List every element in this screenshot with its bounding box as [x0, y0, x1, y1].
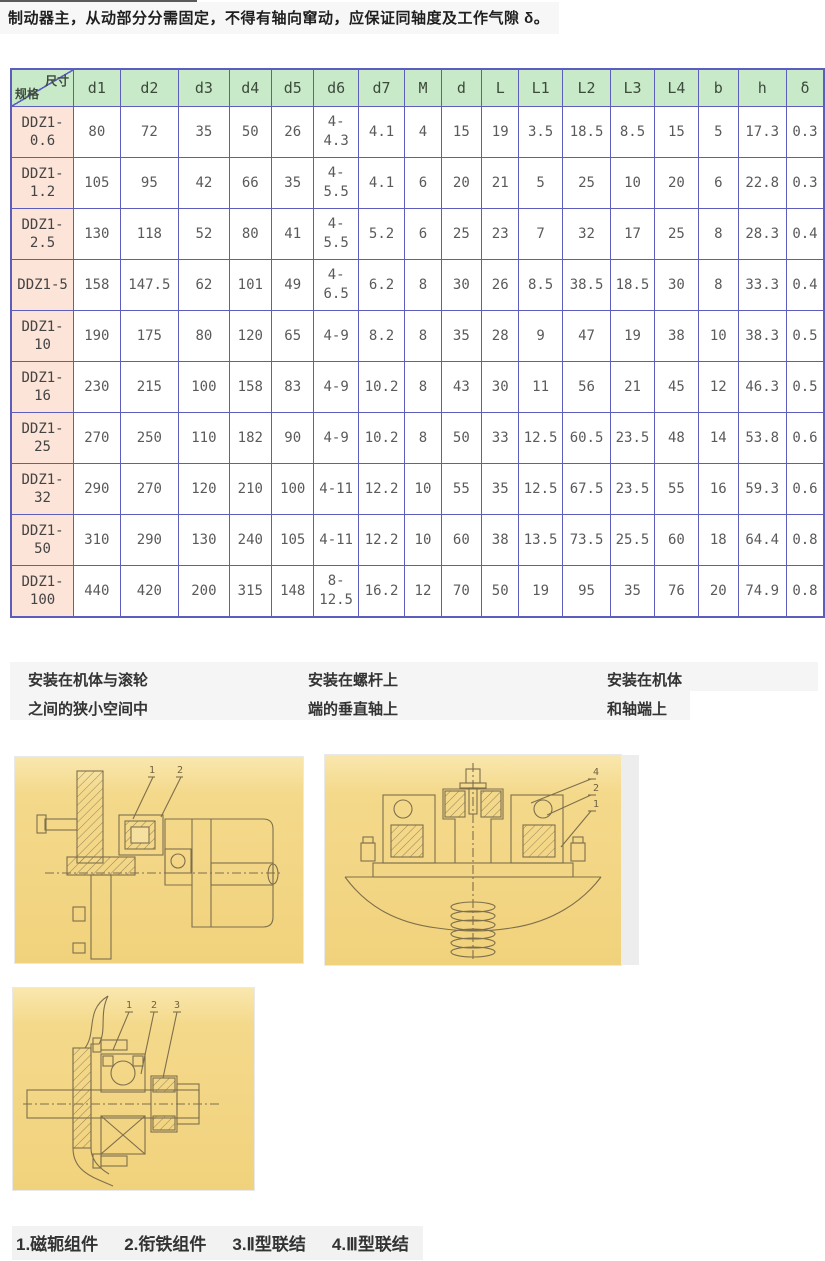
table-cell: 20 — [441, 158, 481, 209]
caption-mounting-3: 安装在机体 和轴端上 — [607, 666, 825, 724]
table-cell: 6 — [699, 158, 738, 209]
caption-line: 安装在螺杆上 — [308, 666, 568, 695]
table-cell: 21 — [611, 362, 654, 413]
table-cell: 23.5 — [611, 464, 654, 515]
spec-cell: DDZ1-5 — [11, 260, 74, 311]
table-row: DDZ1-322902701202101004-1112.210553512.5… — [11, 464, 824, 515]
table-cell: 42 — [179, 158, 229, 209]
table-cell: 8 — [699, 260, 738, 311]
table-row: DDZ1-0.680723550264-4.34.1415193.518.58.… — [11, 107, 824, 158]
table-cell: 6 — [405, 158, 441, 209]
table-cell: 23 — [482, 209, 519, 260]
table-cell: 35 — [179, 107, 229, 158]
caption-line: 之间的狭小空间中 — [28, 695, 288, 724]
table-cell: 25 — [654, 209, 698, 260]
column-header: L3 — [611, 69, 654, 107]
table-cell: 110 — [179, 413, 229, 464]
corner-label-dimension: 尺寸 — [45, 72, 69, 91]
table-cell: 8 — [699, 209, 738, 260]
table-cell: 48 — [654, 413, 698, 464]
column-header: d1 — [74, 69, 120, 107]
figure3-label-2: 2 — [151, 1000, 157, 1011]
column-header: d — [441, 69, 481, 107]
table-cell: 0.3 — [786, 158, 824, 209]
legend-item: 4.Ⅲ型联结 — [332, 1235, 409, 1254]
table-cell: 83 — [272, 362, 314, 413]
table-cell: 16 — [699, 464, 738, 515]
table-cell: 64.4 — [738, 515, 786, 566]
table-row: DDZ1-1.2105954266354-5.54.16202152510206… — [11, 158, 824, 209]
table-cell: 175 — [120, 311, 179, 362]
table-cell: 190 — [74, 311, 120, 362]
table-cell: 240 — [229, 515, 271, 566]
table-cell: 158 — [74, 260, 120, 311]
table-cell: 270 — [120, 464, 179, 515]
caption-mounting-1: 安装在机体与滚轮 之间的狭小空间中 — [28, 666, 288, 724]
table-cell: 49 — [272, 260, 314, 311]
table-row: DDZ1-25270250110182904-910.28503312.560.… — [11, 413, 824, 464]
table-cell: 30 — [654, 260, 698, 311]
table-cell: 120 — [179, 464, 229, 515]
legend-item: 3.Ⅱ型联结 — [232, 1235, 306, 1254]
table-cell: 9 — [519, 311, 562, 362]
table-cell: 200 — [179, 566, 229, 618]
table-cell: 80 — [74, 107, 120, 158]
table-row: DDZ1-2.51301185280414-5.55.2625237321725… — [11, 209, 824, 260]
column-header: M — [405, 69, 441, 107]
table-cell: 4-9 — [314, 413, 358, 464]
column-header: L — [482, 69, 519, 107]
table-cell: 35 — [441, 311, 481, 362]
table-cell: 4-9 — [314, 362, 358, 413]
dimension-table: 尺寸 规格 d1d2d3d4d5d6d7MdLL1L2L3L4bhδ DDZ1-… — [10, 68, 825, 618]
table-cell: 13.5 — [519, 515, 562, 566]
table-cell: 100 — [272, 464, 314, 515]
table-cell: 41 — [272, 209, 314, 260]
figure1-label-1: 1 — [149, 765, 155, 776]
caption-line: 端的垂直轴上 — [308, 695, 568, 724]
table-cell: 118 — [120, 209, 179, 260]
table-cell: 90 — [272, 413, 314, 464]
table-cell: 30 — [482, 362, 519, 413]
column-header: d2 — [120, 69, 179, 107]
figure1-label-2: 2 — [177, 765, 183, 776]
table-cell: 315 — [229, 566, 271, 618]
table-cell: 130 — [179, 515, 229, 566]
table-row: DDZ1-16230215100158834-910.2843301156214… — [11, 362, 824, 413]
column-header: d4 — [229, 69, 271, 107]
table-cell: 101 — [229, 260, 271, 311]
table-cell: 3.5 — [519, 107, 562, 158]
table-cell: 19 — [482, 107, 519, 158]
page: 制动器主，从动部分分需固定，不得有轴向窜动，应保证同轴度及工作气隙 δ。 尺寸 … — [0, 0, 825, 1261]
table-cell: 10 — [611, 158, 654, 209]
table-cell: 290 — [74, 464, 120, 515]
table-cell: 182 — [229, 413, 271, 464]
spec-cell: DDZ1-32 — [11, 464, 74, 515]
column-header: L2 — [562, 69, 610, 107]
table-cell: 25 — [562, 158, 610, 209]
caption-line: 安装在机体 — [607, 666, 825, 695]
table-cell: 270 — [74, 413, 120, 464]
table-cell: 5 — [519, 158, 562, 209]
table-cell: 10 — [405, 464, 441, 515]
table-cell: 8 — [405, 260, 441, 311]
table-cell: 20 — [654, 158, 698, 209]
table-cell: 55 — [441, 464, 481, 515]
dimension-table-wrap: 尺寸 规格 d1d2d3d4d5d6d7MdLL1L2L3L4bhδ DDZ1-… — [10, 68, 825, 618]
table-cell: 47 — [562, 311, 610, 362]
spec-cell: DDZ1-2.5 — [11, 209, 74, 260]
table-header-row: 尺寸 规格 d1d2d3d4d5d6d7MdLL1L2L3L4bhδ — [11, 69, 824, 107]
table-cell: 70 — [441, 566, 481, 618]
table-cell: 15 — [441, 107, 481, 158]
table-cell: 7 — [519, 209, 562, 260]
table-cell: 4-11 — [314, 464, 358, 515]
figure3-label-3: 3 — [174, 1000, 180, 1011]
table-cell: 4-5.5 — [314, 158, 358, 209]
table-cell: 147.5 — [120, 260, 179, 311]
table-cell: 0.6 — [786, 464, 824, 515]
table-cell: 4-5.5 — [314, 209, 358, 260]
table-cell: 17 — [611, 209, 654, 260]
column-header: d7 — [358, 69, 404, 107]
table-cell: 0.4 — [786, 209, 824, 260]
table-cell: 120 — [229, 311, 271, 362]
technical-drawing-3: 1 2 3 — [13, 988, 254, 1190]
table-cell: 17.3 — [738, 107, 786, 158]
table-cell: 19 — [519, 566, 562, 618]
table-cell: 158 — [229, 362, 271, 413]
table-cell: 4.1 — [358, 107, 404, 158]
table-cell: 73.5 — [562, 515, 610, 566]
table-cell: 50 — [441, 413, 481, 464]
column-header: L1 — [519, 69, 562, 107]
parts-legend: 1.磁轭组件2.衔铁组件3.Ⅱ型联结4.Ⅲ型联结 — [12, 1226, 423, 1260]
table-cell: 10.2 — [358, 362, 404, 413]
figure-cross-section-2: 4 2 1 — [325, 755, 621, 965]
table-cell: 76 — [654, 566, 698, 618]
legend-item: 2.衔铁组件 — [124, 1235, 206, 1254]
table-cell: 38.5 — [562, 260, 610, 311]
table-cell: 8-12.5 — [314, 566, 358, 618]
table-cell: 18.5 — [611, 260, 654, 311]
technical-drawing-2: 4 2 1 — [325, 755, 621, 965]
table-cell: 52 — [179, 209, 229, 260]
table-cell: 35 — [482, 464, 519, 515]
table-cell: 53.8 — [738, 413, 786, 464]
caption-mounting-2: 安装在螺杆上 端的垂直轴上 — [308, 666, 568, 724]
figure-cross-section-3: 1 2 3 — [13, 988, 254, 1190]
table-cell: 105 — [74, 158, 120, 209]
table-cell: 60 — [654, 515, 698, 566]
table-cell: 72 — [120, 107, 179, 158]
column-header: h — [738, 69, 786, 107]
table-cell: 59.3 — [738, 464, 786, 515]
table-cell: 0.5 — [786, 362, 824, 413]
table-cell: 35 — [611, 566, 654, 618]
table-cell: 4-4.3 — [314, 107, 358, 158]
table-cell: 16.2 — [358, 566, 404, 618]
table-cell: 50 — [482, 566, 519, 618]
table-cell: 80 — [179, 311, 229, 362]
table-cell: 290 — [120, 515, 179, 566]
table-cell: 95 — [562, 566, 610, 618]
table-cell: 43 — [441, 362, 481, 413]
table-cell: 22.8 — [738, 158, 786, 209]
table-cell: 4-11 — [314, 515, 358, 566]
table-cell: 8.2 — [358, 311, 404, 362]
figure3-label-1: 1 — [126, 1000, 132, 1011]
table-cell: 28.3 — [738, 209, 786, 260]
table-cell: 100 — [179, 362, 229, 413]
table-cell: 18 — [699, 515, 738, 566]
figure-cross-section-1: 1 2 — [15, 757, 303, 963]
table-cell: 8 — [405, 413, 441, 464]
table-cell: 18.5 — [562, 107, 610, 158]
figure-side-strip — [621, 755, 639, 965]
table-cell: 60 — [441, 515, 481, 566]
table-cell: 0.3 — [786, 107, 824, 158]
table-cell: 6 — [405, 209, 441, 260]
table-cell: 230 — [74, 362, 120, 413]
table-cell: 38 — [654, 311, 698, 362]
table-cell: 0.4 — [786, 260, 824, 311]
table-cell: 6.2 — [358, 260, 404, 311]
technical-drawing-1: 1 2 — [15, 757, 303, 963]
table-cell: 215 — [120, 362, 179, 413]
column-header: δ — [786, 69, 824, 107]
table-row: DDZ1-1019017580120654-98.283528947193810… — [11, 311, 824, 362]
table-row: DDZ1-5158147.562101494-6.56.2830268.538.… — [11, 260, 824, 311]
corner-label-spec: 规格 — [15, 85, 39, 104]
table-cell: 45 — [654, 362, 698, 413]
column-header: L4 — [654, 69, 698, 107]
table-cell: 35 — [272, 158, 314, 209]
table-cell: 0.8 — [786, 515, 824, 566]
table-cell: 62 — [179, 260, 229, 311]
table-cell: 25 — [441, 209, 481, 260]
table-cell: 56 — [562, 362, 610, 413]
table-cell: 33.3 — [738, 260, 786, 311]
spec-cell: DDZ1-100 — [11, 566, 74, 618]
table-cell: 66 — [229, 158, 271, 209]
table-cell: 8 — [405, 362, 441, 413]
corner-header-cell: 尺寸 规格 — [11, 69, 74, 107]
table-cell: 50 — [229, 107, 271, 158]
figure2-label-4: 4 — [593, 767, 599, 778]
table-cell: 0.6 — [786, 413, 824, 464]
table-cell: 38 — [482, 515, 519, 566]
table-cell: 21 — [482, 158, 519, 209]
caption-line: 和轴端上 — [607, 695, 825, 724]
table-cell: 12 — [699, 362, 738, 413]
table-cell: 440 — [74, 566, 120, 618]
table-cell: 67.5 — [562, 464, 610, 515]
table-cell: 130 — [74, 209, 120, 260]
table-cell: 148 — [272, 566, 314, 618]
table-cell: 310 — [74, 515, 120, 566]
table-cell: 4-9 — [314, 311, 358, 362]
spec-cell: DDZ1-16 — [11, 362, 74, 413]
table-cell: 0.8 — [786, 566, 824, 618]
table-cell: 12.5 — [519, 413, 562, 464]
table-cell: 250 — [120, 413, 179, 464]
table-cell: 33 — [482, 413, 519, 464]
table-cell: 8.5 — [611, 107, 654, 158]
column-header: d5 — [272, 69, 314, 107]
spec-cell: DDZ1-50 — [11, 515, 74, 566]
column-header: b — [699, 69, 738, 107]
figure2-label-2: 2 — [593, 783, 599, 794]
table-cell: 210 — [229, 464, 271, 515]
table-cell: 5 — [699, 107, 738, 158]
caption-line: 安装在机体与滚轮 — [28, 666, 288, 695]
table-cell: 5.2 — [358, 209, 404, 260]
table-cell: 80 — [229, 209, 271, 260]
table-cell: 38.3 — [738, 311, 786, 362]
column-header: d3 — [179, 69, 229, 107]
table-cell: 11 — [519, 362, 562, 413]
table-cell: 20 — [699, 566, 738, 618]
column-header: d6 — [314, 69, 358, 107]
figure2-label-1: 1 — [593, 799, 599, 810]
table-cell: 10.2 — [358, 413, 404, 464]
spec-cell: DDZ1-0.6 — [11, 107, 74, 158]
table-cell: 0.5 — [786, 311, 824, 362]
table-cell: 32 — [562, 209, 610, 260]
table-cell: 46.3 — [738, 362, 786, 413]
intro-text: 制动器主，从动部分分需固定，不得有轴向窜动，应保证同轴度及工作气隙 δ。 — [0, 2, 559, 34]
table-row: DDZ1-1004404202003151488-12.516.21270501… — [11, 566, 824, 618]
spec-cell: DDZ1-25 — [11, 413, 74, 464]
table-cell: 8 — [405, 311, 441, 362]
table-cell: 23.5 — [611, 413, 654, 464]
table-cell: 15 — [654, 107, 698, 158]
table-cell: 14 — [699, 413, 738, 464]
table-cell: 12.5 — [519, 464, 562, 515]
table-cell: 4.1 — [358, 158, 404, 209]
spec-cell: DDZ1-10 — [11, 311, 74, 362]
table-cell: 60.5 — [562, 413, 610, 464]
table-cell: 4-6.5 — [314, 260, 358, 311]
table-cell: 26 — [482, 260, 519, 311]
table-cell: 28 — [482, 311, 519, 362]
table-cell: 105 — [272, 515, 314, 566]
table-cell: 10 — [699, 311, 738, 362]
table-cell: 4 — [405, 107, 441, 158]
table-cell: 12.2 — [358, 515, 404, 566]
table-cell: 26 — [272, 107, 314, 158]
table-cell: 12 — [405, 566, 441, 618]
dimension-table-body: DDZ1-0.680723550264-4.34.1415193.518.58.… — [11, 107, 824, 618]
table-cell: 420 — [120, 566, 179, 618]
legend-item: 1.磁轭组件 — [16, 1235, 98, 1254]
table-cell: 65 — [272, 311, 314, 362]
table-cell: 55 — [654, 464, 698, 515]
spec-cell: DDZ1-1.2 — [11, 158, 74, 209]
table-cell: 25.5 — [611, 515, 654, 566]
table-cell: 30 — [441, 260, 481, 311]
table-row: DDZ1-503102901302401054-1112.210603813.5… — [11, 515, 824, 566]
table-cell: 74.9 — [738, 566, 786, 618]
table-cell: 95 — [120, 158, 179, 209]
table-cell: 8.5 — [519, 260, 562, 311]
table-cell: 10 — [405, 515, 441, 566]
table-cell: 12.2 — [358, 464, 404, 515]
table-cell: 19 — [611, 311, 654, 362]
